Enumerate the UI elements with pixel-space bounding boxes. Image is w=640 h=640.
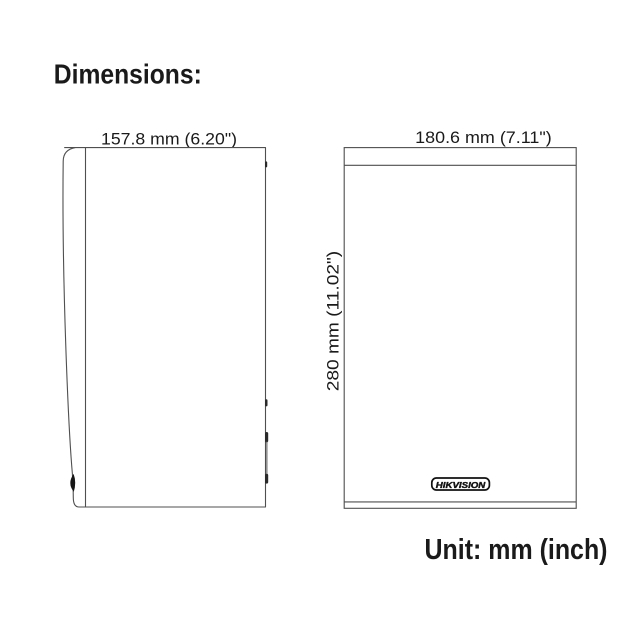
- svg-text:Dimensions:: Dimensions:: [54, 58, 202, 89]
- svg-text:280 mm (11.02"): 280 mm (11.02"): [324, 251, 343, 392]
- svg-text:HIKVISION: HIKVISION: [436, 481, 486, 490]
- svg-text:Unit: mm (inch): Unit: mm (inch): [425, 534, 608, 566]
- svg-text:180.6 mm (7.11"): 180.6 mm (7.11"): [415, 128, 552, 147]
- svg-text:157.8 mm (6.20"): 157.8 mm (6.20"): [101, 130, 237, 149]
